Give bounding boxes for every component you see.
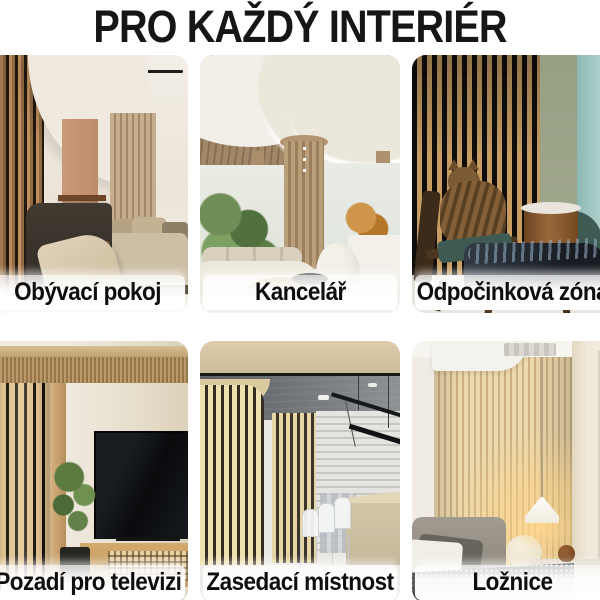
photo-tv-wall [0,341,188,600]
label-text: Ložnice [472,568,552,597]
tile-label-relax-zone: Odpočinková zóna [415,275,600,310]
promo-collage: PRO KAŽDÝ INTERIÉR [0,0,600,600]
tile-label-office: Kancelář [203,275,397,310]
conference-chair [334,497,351,529]
label-text: Obývací pokoj [15,278,162,307]
tile-meeting-room: Zasedací místnost [200,341,400,600]
fluted-cornice [0,357,188,383]
tile-office: Kancelář [200,55,400,313]
pendant-wire [388,376,389,428]
ac-vent [504,343,556,356]
tile-relax-zone: Odpočinková zóna [412,55,600,313]
tile-label-meeting-room: Zasedací místnost [203,565,397,600]
side-table-top [521,202,581,214]
label-text: Zasedací místnost [206,568,393,597]
recessed-light [368,383,377,387]
curved-soffit [200,341,400,373]
page-title: PRO KAŽDÝ INTERIÉR [36,0,564,53]
conference-table [346,503,400,569]
conference-chair [302,509,319,537]
label-text: Kancelář [255,278,346,307]
tile-label-bedroom: Ložnice [415,565,600,600]
tile-label-living-room: Obývací pokoj [0,275,185,310]
tile-tv-wall: Pozadí pro televizi [0,341,188,600]
tv-stand [116,537,180,541]
photo-bedroom [412,341,600,600]
label-text: Odpočinková zóna [416,278,600,307]
photo-meeting-room [200,341,400,600]
pendant-cord [541,357,543,501]
potted-plant [46,457,104,557]
tile-grid: Obývací pokoj [0,55,600,600]
wood-crown-molding [0,346,188,357]
label-text: Pozadí pro televizi [0,568,181,597]
slat-column [200,385,264,565]
tile-living-room: Obývací pokoj [0,55,188,313]
tile-label-tv-wall: Pozadí pro televizi [0,565,185,600]
recessed-light [318,395,329,400]
column-spotlights [303,147,306,175]
tile-bedroom: Ložnice [412,341,600,600]
conference-chair [318,503,335,533]
tv-screen [94,431,188,539]
wall-shelf [58,195,106,201]
